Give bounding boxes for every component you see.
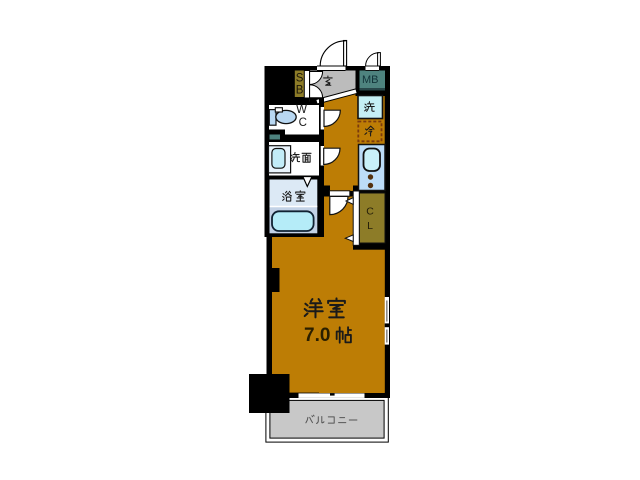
svg-text:L: L: [367, 220, 373, 232]
svg-text:W: W: [296, 104, 307, 116]
svg-text:MB: MB: [362, 74, 379, 86]
svg-text:C: C: [299, 117, 307, 129]
svg-text:C: C: [366, 205, 374, 217]
svg-text:B: B: [296, 84, 304, 96]
svg-text:S: S: [296, 72, 304, 84]
svg-text:7.0: 7.0: [304, 325, 330, 346]
